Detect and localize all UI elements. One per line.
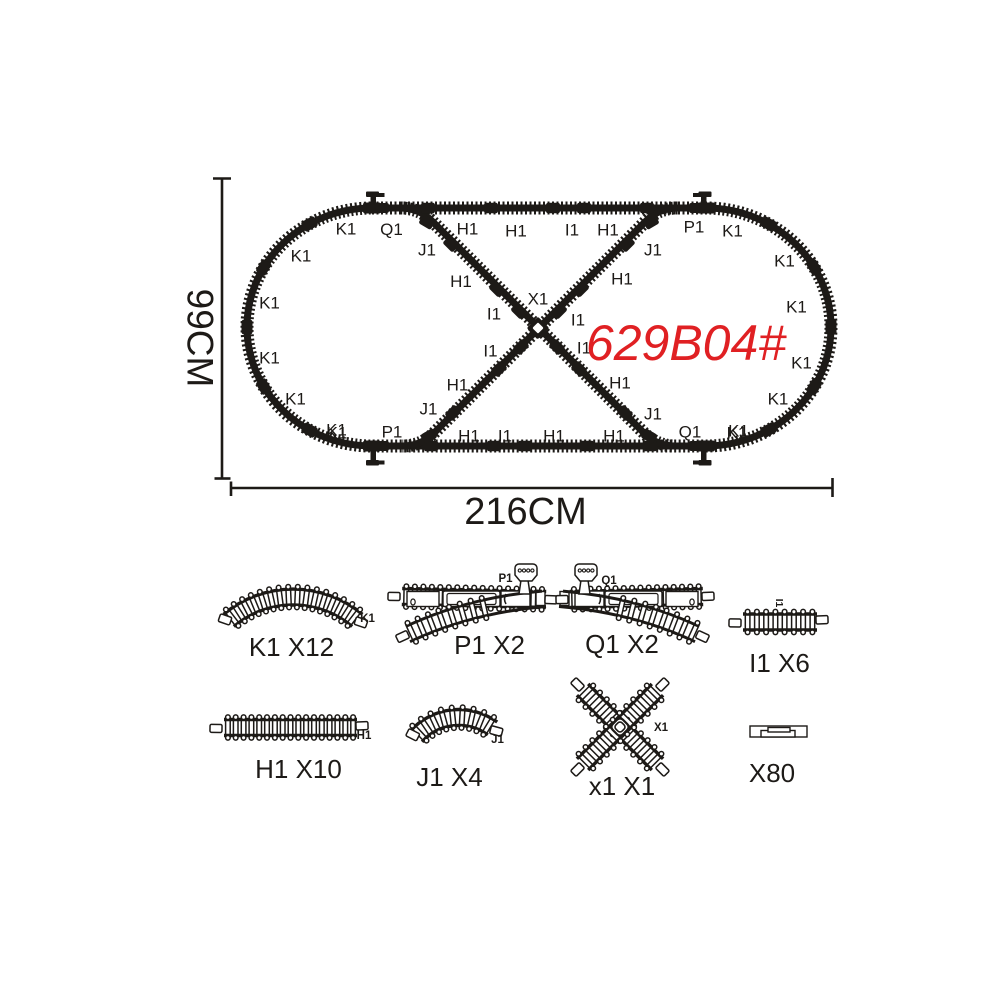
svg-text:99CM: 99CM [180, 289, 221, 388]
svg-text:P1: P1 [684, 218, 705, 237]
svg-text:P1: P1 [498, 573, 513, 585]
svg-text:I1: I1 [483, 342, 497, 361]
svg-text:Q1 X2: Q1 X2 [585, 629, 659, 659]
svg-text:K1: K1 [728, 422, 749, 441]
svg-text:K1: K1 [791, 354, 812, 373]
svg-text:Q1: Q1 [679, 423, 702, 442]
svg-text:H1: H1 [609, 374, 631, 393]
svg-text:K1: K1 [259, 349, 280, 368]
svg-text:I1: I1 [498, 427, 512, 446]
svg-text:I1: I1 [487, 305, 501, 324]
svg-text:K1: K1 [336, 220, 357, 239]
svg-text:I1: I1 [773, 599, 785, 608]
svg-text:J1: J1 [491, 734, 504, 746]
svg-text:J1: J1 [644, 405, 662, 424]
svg-text:I1 X6: I1 X6 [749, 648, 810, 678]
svg-text:I1: I1 [571, 311, 585, 330]
svg-text:H1: H1 [458, 427, 480, 446]
svg-text:X80: X80 [749, 758, 795, 788]
svg-text:K1: K1 [722, 222, 743, 241]
svg-text:H1: H1 [597, 221, 619, 240]
svg-text:P1: P1 [382, 423, 403, 442]
svg-text:K1: K1 [291, 247, 312, 266]
svg-text:X1: X1 [654, 722, 669, 734]
svg-text:K1: K1 [285, 390, 306, 409]
svg-text:629B04#: 629B04# [586, 315, 787, 371]
svg-text:J1: J1 [418, 241, 436, 260]
svg-text:J1 X4: J1 X4 [416, 762, 483, 792]
svg-text:K1: K1 [327, 424, 348, 443]
svg-text:H1: H1 [603, 427, 625, 446]
svg-text:x1 X1: x1 X1 [589, 771, 656, 801]
svg-text:H1: H1 [505, 222, 527, 241]
svg-text:K1: K1 [768, 390, 789, 409]
svg-text:K1: K1 [259, 294, 280, 313]
svg-text:H1: H1 [543, 427, 565, 446]
svg-text:J1: J1 [644, 241, 662, 260]
svg-text:H1: H1 [447, 376, 469, 395]
svg-text:H1: H1 [457, 220, 479, 239]
svg-text:J1: J1 [420, 400, 438, 419]
svg-text:X1: X1 [528, 290, 549, 309]
svg-text:H1: H1 [611, 270, 633, 289]
svg-text:216CM: 216CM [464, 491, 587, 533]
svg-text:K1: K1 [774, 252, 795, 271]
svg-text:K1: K1 [786, 298, 807, 317]
svg-text:Q1: Q1 [380, 220, 403, 239]
svg-text:H1 X10: H1 X10 [255, 754, 342, 784]
svg-text:K1: K1 [360, 613, 375, 625]
svg-text:K1 X12: K1 X12 [249, 632, 334, 662]
svg-text:P1 X2: P1 X2 [454, 630, 525, 660]
svg-text:I1: I1 [565, 221, 579, 240]
svg-text:H1: H1 [357, 730, 372, 742]
svg-text:Q1: Q1 [601, 575, 617, 587]
svg-text:H1: H1 [450, 272, 472, 291]
